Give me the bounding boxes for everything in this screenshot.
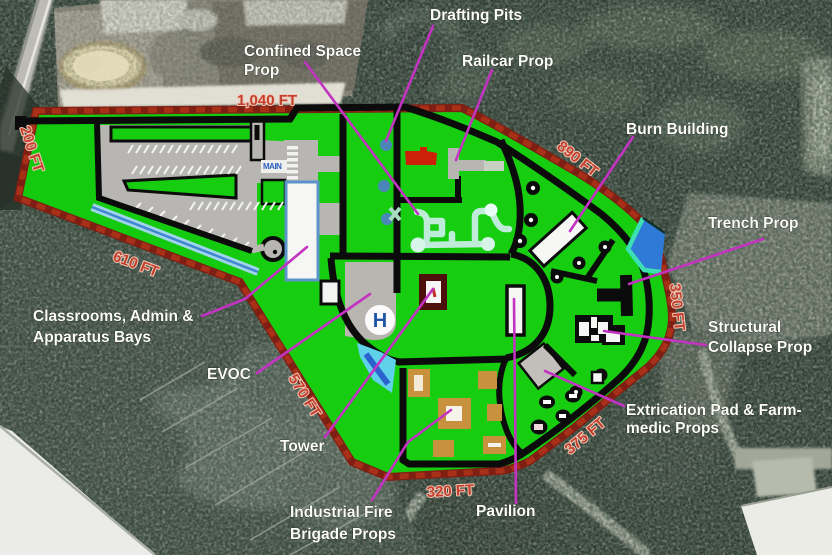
svg-text:Prop: Prop [244, 62, 279, 79]
svg-text:Industrial Fire: Industrial Fire [290, 504, 393, 521]
svg-text:1,040 FT: 1,040 FT [237, 92, 297, 109]
svg-text:H: H [373, 310, 387, 332]
svg-text:Drafting Pits: Drafting Pits [430, 7, 522, 24]
svg-text:MAIN: MAIN [263, 162, 282, 171]
svg-text:Classrooms, Admin &: Classrooms, Admin & [33, 308, 194, 325]
svg-text:Railcar Prop: Railcar Prop [462, 53, 553, 70]
svg-text:Collapse Prop: Collapse Prop [708, 339, 812, 356]
svg-text:Structural: Structural [708, 319, 781, 336]
svg-text:Brigade Props: Brigade Props [290, 526, 396, 543]
svg-text:medic Props: medic Props [626, 420, 719, 437]
svg-text:320 FT: 320 FT [426, 482, 474, 501]
svg-text:Extrication Pad & Farm-: Extrication Pad & Farm- [626, 402, 802, 419]
svg-text:Pavilion: Pavilion [476, 503, 535, 520]
svg-text:Burn Building: Burn Building [626, 121, 728, 138]
svg-text:Trench Prop: Trench Prop [708, 215, 798, 232]
svg-text:Apparatus Bays: Apparatus Bays [33, 329, 151, 346]
svg-text:EVOC: EVOC [207, 366, 251, 383]
svg-text:Tower: Tower [280, 438, 325, 455]
svg-text:Confined Space: Confined Space [244, 43, 362, 60]
